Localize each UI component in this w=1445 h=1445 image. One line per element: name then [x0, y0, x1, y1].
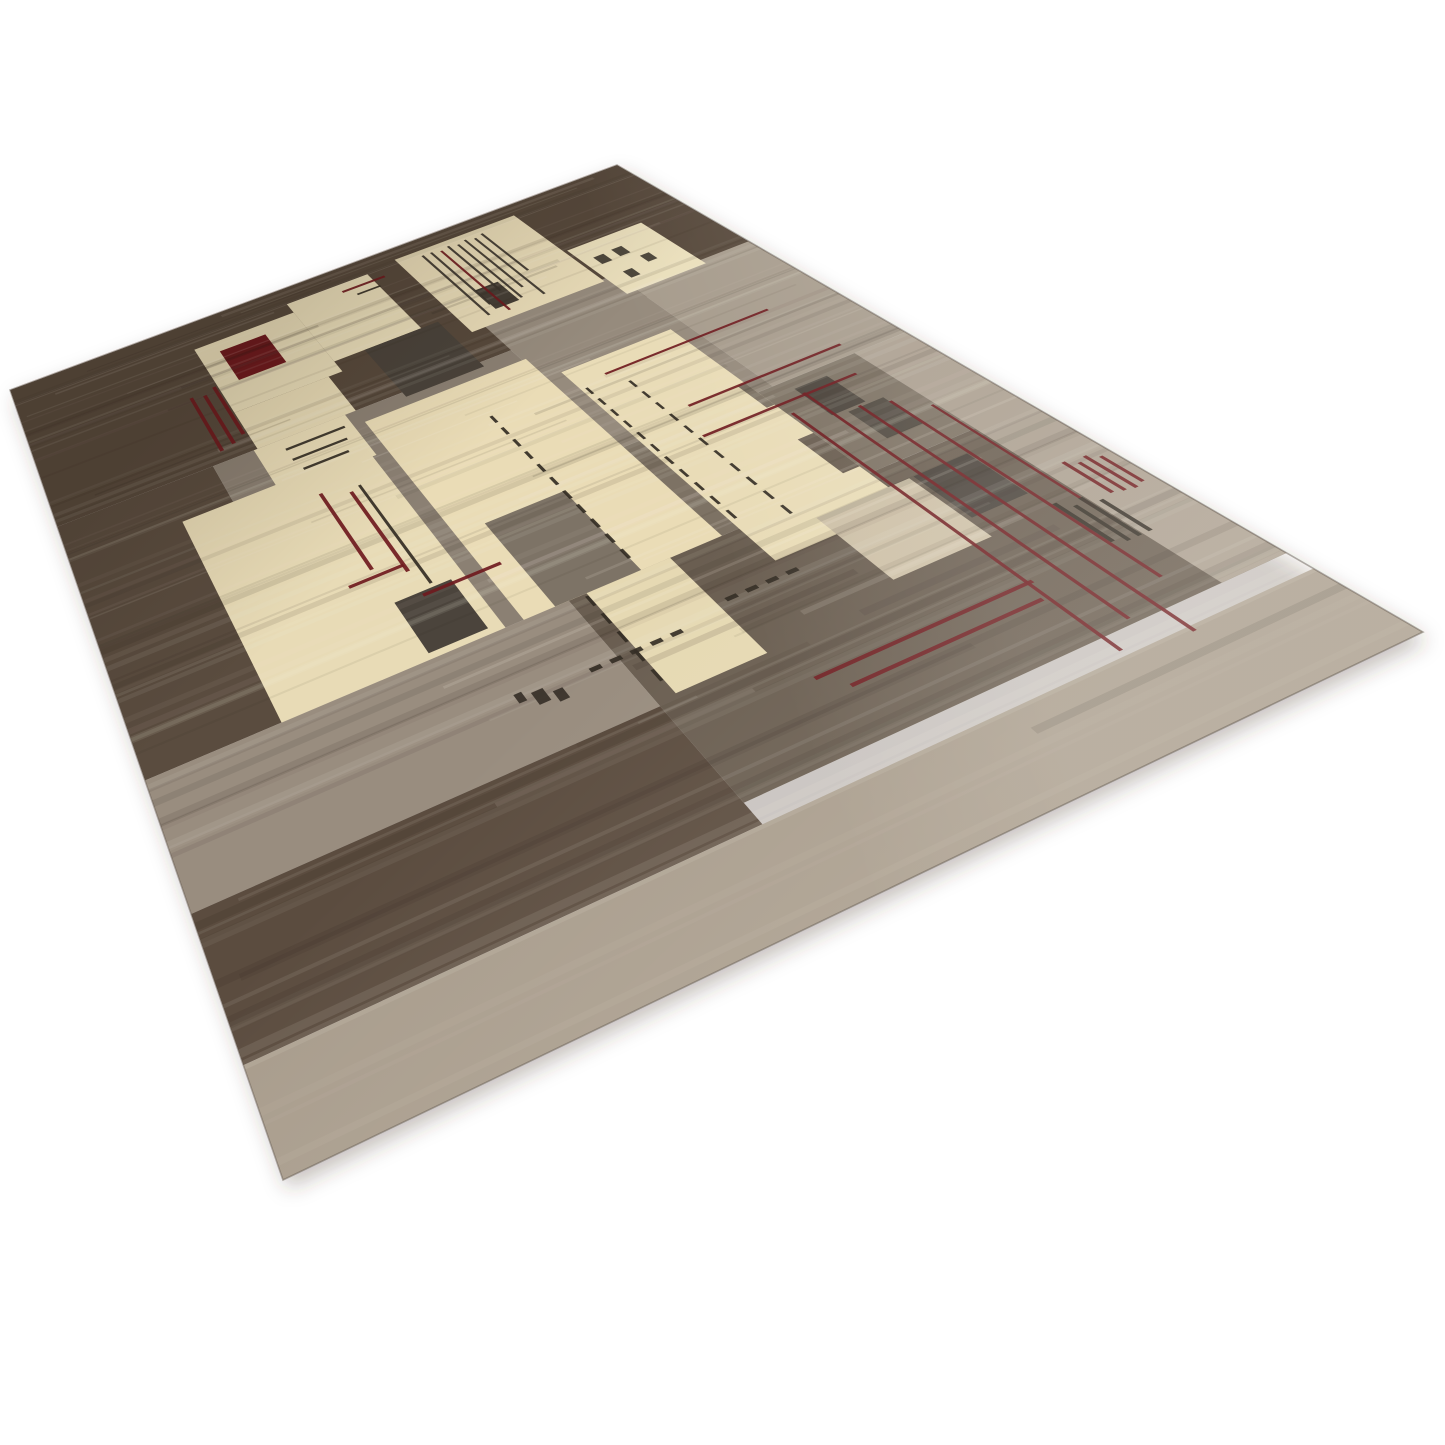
rug-photo — [0, 0, 1445, 1445]
product-photo-canvas — [0, 0, 1445, 1445]
